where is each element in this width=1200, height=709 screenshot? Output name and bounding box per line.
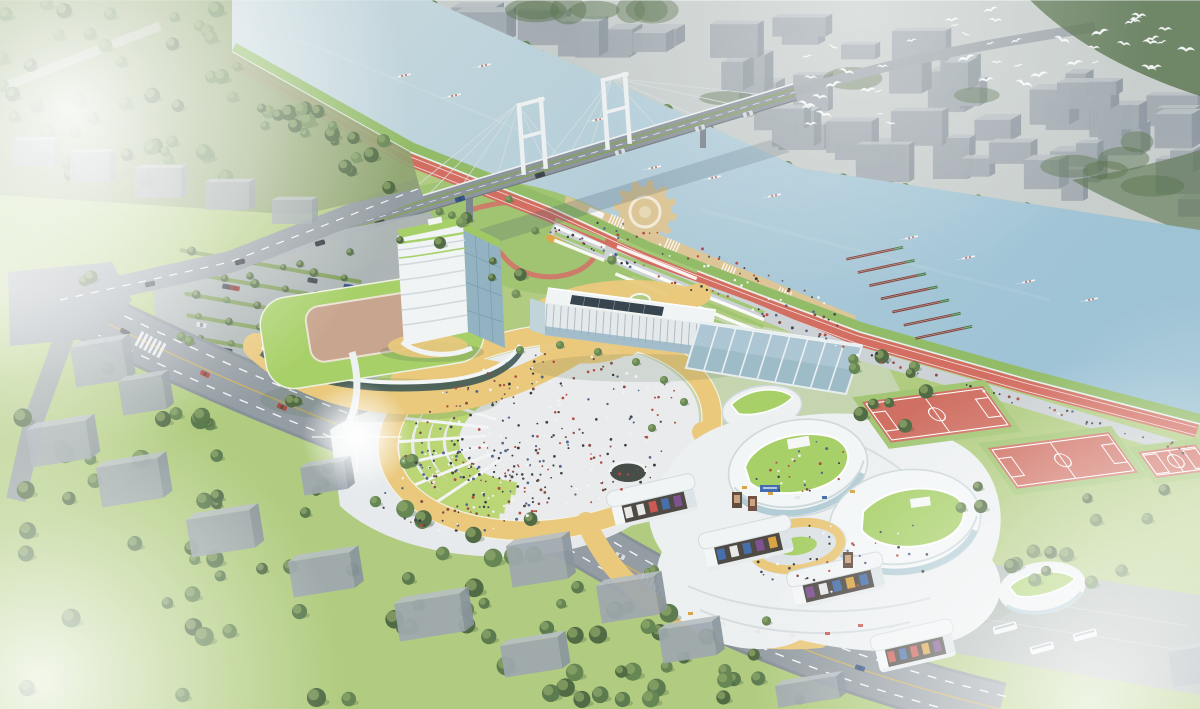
aerial-rendering: [0, 0, 1200, 709]
sun-glare: [0, 0, 1200, 709]
rendering-canvas: [0, 0, 1200, 709]
fog-and-light: [0, 0, 1200, 709]
